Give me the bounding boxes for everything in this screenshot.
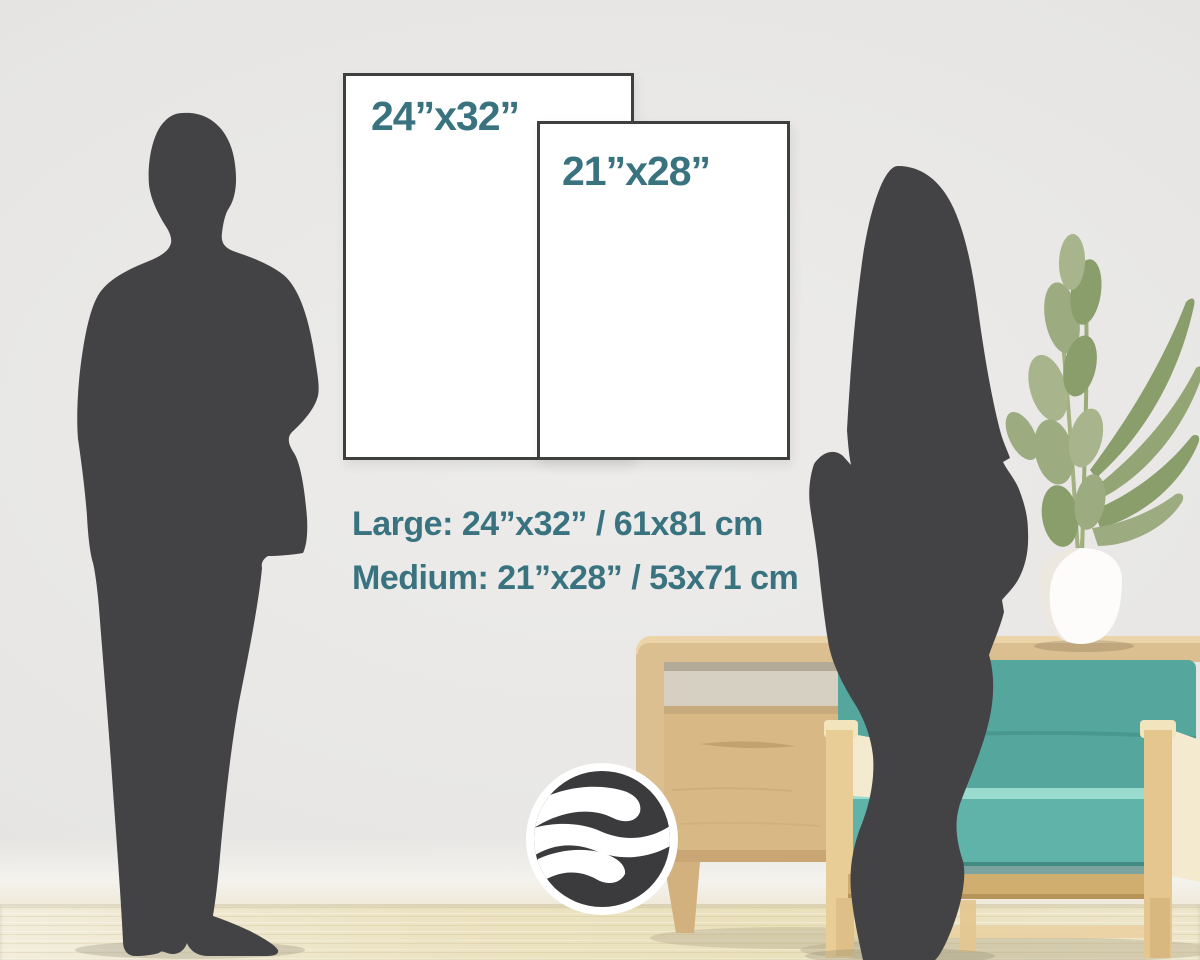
caption-large-size: Large: 24”x32” / 61x81 cm [352, 505, 763, 544]
sofa-back-cushion [838, 660, 1196, 800]
vase [1040, 548, 1122, 644]
potted-plant [999, 234, 1200, 652]
man-silhouette [77, 113, 318, 956]
sideboard-open-shelf [664, 662, 940, 712]
drawer-grain [700, 741, 796, 748]
poster-medium: 21”x28” [537, 121, 790, 460]
wood-floor [0, 904, 1200, 960]
wall-floor-transition [0, 838, 1200, 908]
poster-medium-size-label: 21”x28” [562, 148, 787, 195]
sideboard-drawer [664, 714, 940, 852]
size-guide-scene: 24”x32” 21”x28” Large: 24”x32” / 61x81 c… [0, 0, 1200, 960]
caption-medium-size: Medium: 21”x28” / 53x71 cm [352, 559, 798, 598]
armrest-panel [852, 734, 908, 800]
